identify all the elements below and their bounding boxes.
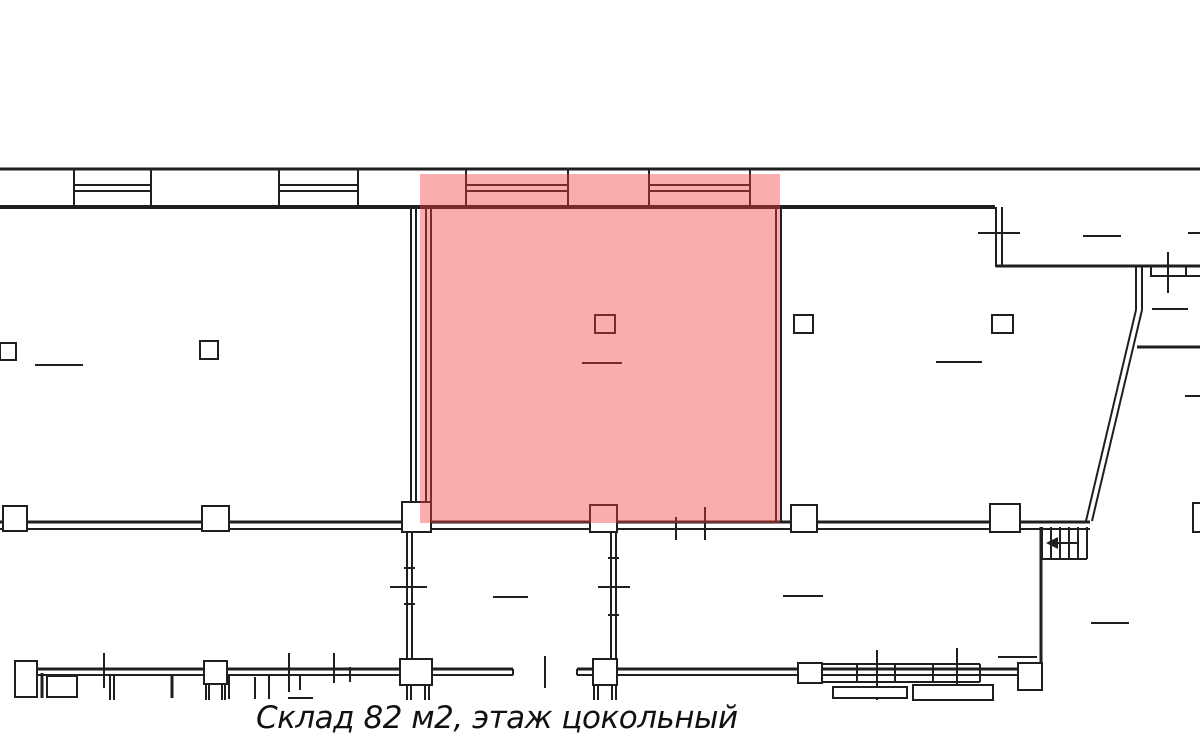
highlighted-unit-overlay[interactable]: [420, 174, 780, 523]
floor-plan-page: Склад 82 м2, этаж цокольный: [0, 0, 1200, 745]
plan-caption: Склад 82 м2, этаж цокольный: [256, 700, 738, 736]
